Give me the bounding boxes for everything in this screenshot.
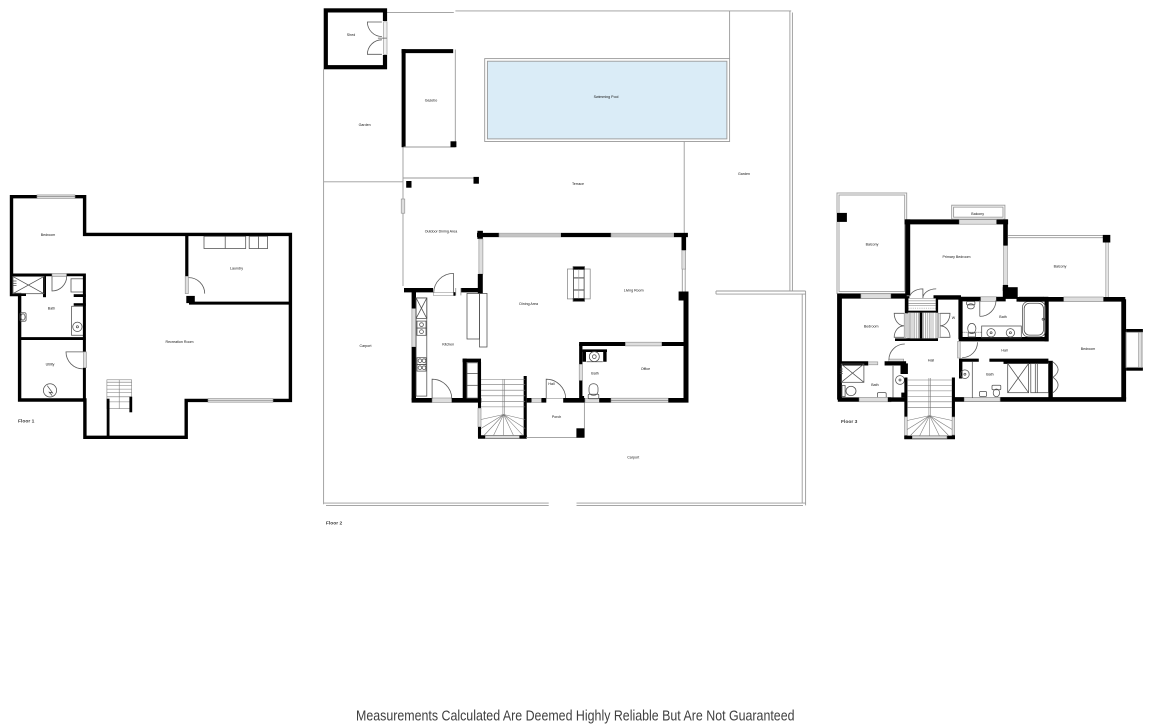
svg-text:Floor 1: Floor 1 bbox=[18, 419, 35, 425]
svg-text:Bath: Bath bbox=[999, 315, 1006, 319]
svg-text:Bath: Bath bbox=[48, 307, 55, 311]
svg-text:Dining Area: Dining Area bbox=[519, 302, 538, 306]
svg-text:Bath: Bath bbox=[591, 371, 598, 375]
svg-text:Porch: Porch bbox=[552, 415, 561, 419]
svg-text:Balcony: Balcony bbox=[866, 243, 879, 247]
svg-text:Hall: Hall bbox=[548, 382, 554, 386]
svg-text:Gazebo: Gazebo bbox=[425, 99, 438, 103]
svg-text:Bedroom: Bedroom bbox=[864, 325, 879, 329]
svg-text:Living Room: Living Room bbox=[624, 289, 644, 293]
svg-text:Garden: Garden bbox=[738, 172, 750, 176]
svg-text:Bath: Bath bbox=[986, 373, 993, 377]
svg-text:Hall: Hall bbox=[928, 358, 934, 362]
svg-text:Bath: Bath bbox=[871, 383, 878, 387]
svg-text:Garden: Garden bbox=[359, 123, 371, 127]
svg-text:Shed: Shed bbox=[347, 33, 355, 37]
svg-text:Kitchen: Kitchen bbox=[442, 343, 454, 347]
svg-text:Terrace: Terrace bbox=[572, 182, 584, 186]
svg-text:Carport: Carport bbox=[627, 456, 639, 460]
svg-text:Office: Office bbox=[641, 367, 650, 371]
svg-text:Utility: Utility bbox=[46, 363, 55, 367]
svg-text:Carport: Carport bbox=[360, 344, 372, 348]
svg-text:Laundry: Laundry bbox=[230, 267, 243, 271]
svg-text:W: W bbox=[952, 316, 956, 320]
svg-text:Outdoor Dining Area: Outdoor Dining Area bbox=[425, 229, 458, 233]
svg-text:Swimming Pool: Swimming Pool bbox=[594, 95, 619, 99]
svg-text:Recreation Room: Recreation Room bbox=[166, 340, 194, 344]
svg-text:Primary Bedroom: Primary Bedroom bbox=[943, 255, 971, 259]
svg-text:Bedroom: Bedroom bbox=[41, 233, 56, 237]
svg-text:Balcony: Balcony bbox=[971, 212, 984, 216]
svg-text:Hall: Hall bbox=[1001, 348, 1007, 352]
svg-text:Balcony: Balcony bbox=[1054, 264, 1067, 268]
svg-text:Floor 3: Floor 3 bbox=[841, 419, 858, 425]
svg-text:Floor 2: Floor 2 bbox=[326, 521, 343, 527]
svg-text:Bedroom: Bedroom bbox=[1081, 347, 1096, 351]
svg-text:Measurements Calculated Are De: Measurements Calculated Are Deemed Highl… bbox=[356, 709, 795, 725]
